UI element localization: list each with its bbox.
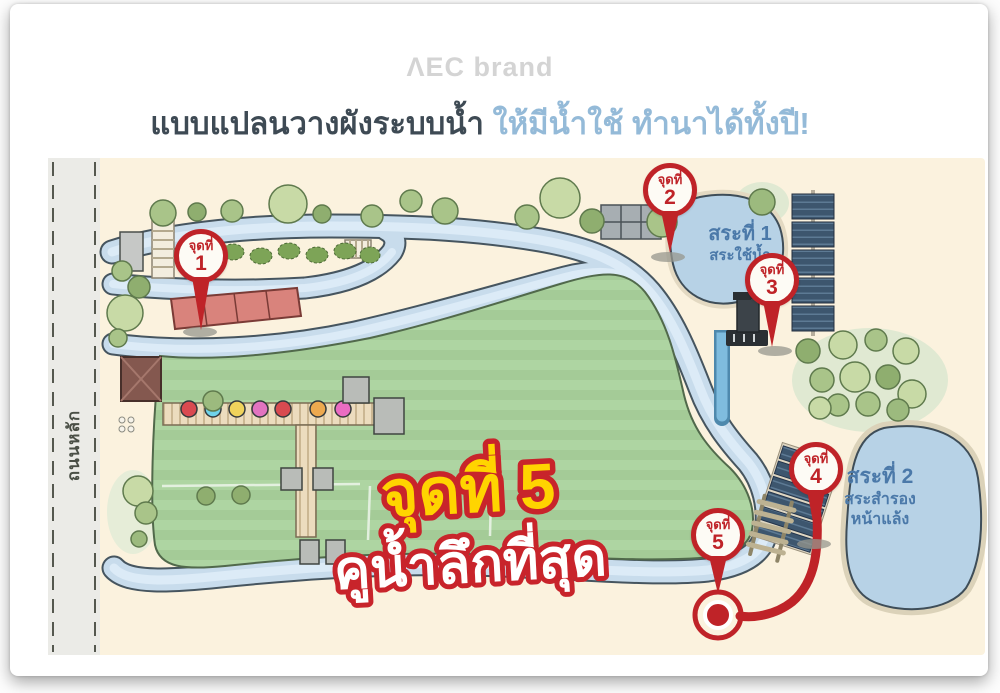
marker-pointer bbox=[192, 277, 210, 330]
point-marker-5: จุดที่ 5 bbox=[691, 508, 745, 594]
marker-2-shadow bbox=[651, 252, 685, 262]
point-marker-4: จุดที่ 4 bbox=[789, 442, 843, 538]
point-marker-2: จุดที่ 2 bbox=[643, 163, 697, 253]
point-marker-1: จุดที่ 1 bbox=[174, 229, 228, 330]
marker-2-circle: จุดที่ 2 bbox=[643, 163, 697, 217]
marker-pointer bbox=[763, 301, 781, 347]
marker-3-shadow bbox=[758, 346, 792, 356]
marker-pointer bbox=[661, 211, 679, 253]
farm-plan-map: จุดที่ 5 คูน้ำลึกที่สุด bbox=[0, 0, 1000, 693]
pond-1-name: สระที่ 1 bbox=[688, 222, 792, 247]
marker-pointer bbox=[807, 490, 825, 538]
marker-3-circle: จุดที่ 3 bbox=[745, 253, 799, 307]
marker-5-circle: จุดที่ 5 bbox=[691, 508, 745, 562]
house-icon bbox=[121, 357, 161, 401]
marker-4-shadow bbox=[797, 539, 831, 549]
road-label: ถนนหลัก bbox=[52, 398, 96, 492]
marker-4-circle: จุดที่ 4 bbox=[789, 442, 843, 496]
marker-pointer bbox=[709, 556, 727, 594]
point-marker-3: จุดที่ 3 bbox=[745, 253, 799, 347]
marker-1-circle: จุดที่ 1 bbox=[174, 229, 228, 283]
